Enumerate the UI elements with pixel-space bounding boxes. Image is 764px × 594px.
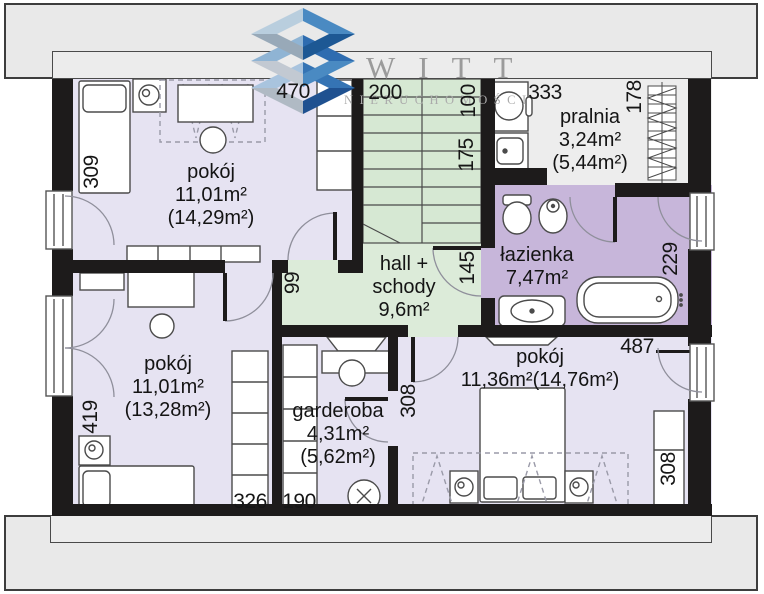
room-area-gross: (14,29m²): [168, 207, 255, 230]
room-area-gross: (13,28m²): [125, 399, 212, 422]
desk-icon: [178, 85, 253, 122]
room-label-hall-schody: hall + schody 9,6m²: [372, 253, 435, 322]
room-area-gross: (5,62m²): [292, 446, 383, 469]
logo-ring-top: [251, 8, 355, 60]
low-cabinet-icon: [127, 246, 260, 262]
dim-175: 175: [455, 138, 479, 172]
room-name: garderoba: [292, 400, 383, 423]
dim-100: 100: [457, 84, 481, 118]
wall: [52, 504, 712, 516]
dim-487: 487: [620, 335, 654, 359]
pillow-icon: [484, 477, 517, 499]
dim-333: 333: [528, 81, 562, 105]
pillow-icon: [83, 85, 126, 112]
shelf-icon: [486, 337, 557, 345]
window-icon: [46, 191, 72, 249]
bathtub-icon: [577, 277, 682, 323]
wall: [52, 396, 73, 516]
dim-229: 229: [659, 242, 683, 276]
wall: [688, 79, 711, 193]
room-name: pokój: [125, 353, 212, 376]
dim-99: 99: [281, 272, 305, 294]
window-icon: [46, 296, 72, 396]
room-area: 9,6m²: [372, 299, 435, 322]
room-name: pokój: [168, 161, 255, 184]
shelf-icon: [80, 273, 124, 290]
wall: [481, 298, 495, 337]
dim-190: 190: [282, 490, 316, 514]
stool-icon: [339, 360, 365, 386]
room-label-pokoj-bottom-left: pokój 11,01m² (13,28m²): [125, 353, 212, 422]
pillow-icon: [83, 471, 110, 507]
dim-308-left: 308: [397, 384, 421, 418]
wardrobe-icon: [232, 351, 268, 505]
wall-lintel: [658, 193, 688, 197]
room-area: 11,01m²: [125, 376, 212, 399]
chair-icon: [150, 314, 174, 338]
wall: [338, 260, 363, 273]
room-name: łazienka: [500, 244, 573, 267]
room-label-pralnia: pralnia 3,24m² (5,44m²): [552, 106, 628, 175]
wall: [272, 260, 282, 516]
dim-470: 470: [276, 80, 310, 104]
dim-419: 419: [79, 400, 103, 434]
dim-309: 309: [80, 155, 104, 189]
room-label-pokoj-top-left: pokój 11,01m² (14,29m²): [168, 161, 255, 230]
room-name: hall +: [372, 253, 435, 276]
wall: [282, 325, 408, 337]
dim-308-cabinet: 308: [657, 452, 681, 486]
room-name: pokój: [461, 346, 620, 369]
wall: [388, 446, 398, 516]
wall: [481, 168, 547, 185]
wall: [458, 325, 712, 337]
room-area-gross: (5,44m²): [552, 152, 628, 175]
chair-icon: [200, 127, 226, 153]
wall: [52, 79, 73, 191]
room-area: 4,31m²: [292, 423, 383, 446]
wall: [388, 337, 398, 391]
desk-icon: [128, 272, 194, 307]
room-area: 11,36m²(14,76m²): [461, 369, 620, 392]
wall: [688, 399, 711, 516]
wall: [52, 260, 225, 273]
dim-145: 145: [456, 251, 480, 285]
room-label-pokoj-bottom-right: pokój 11,36m²(14,76m²): [461, 346, 620, 392]
room-label-garderoba: garderoba 4,31m² (5,62m²): [292, 400, 383, 469]
room-name: pralnia: [552, 106, 628, 129]
mirror-icon: [327, 337, 386, 351]
dim-200: 200: [368, 81, 402, 105]
room-label-lazienka: łazienka 7,47m²: [500, 244, 573, 290]
floor-plan: WITT NIERUCHOMOŚCI pokój 11,01m² (14,29m…: [0, 0, 764, 594]
room-area: 3,24m²: [552, 129, 628, 152]
drying-rack-icon: [648, 82, 676, 184]
dim-326: 326: [233, 490, 267, 514]
room-name: schody: [372, 276, 435, 299]
room-area: 11,01m²: [168, 184, 255, 207]
dim-178: 178: [623, 80, 647, 114]
room-area: 7,47m²: [500, 267, 573, 290]
